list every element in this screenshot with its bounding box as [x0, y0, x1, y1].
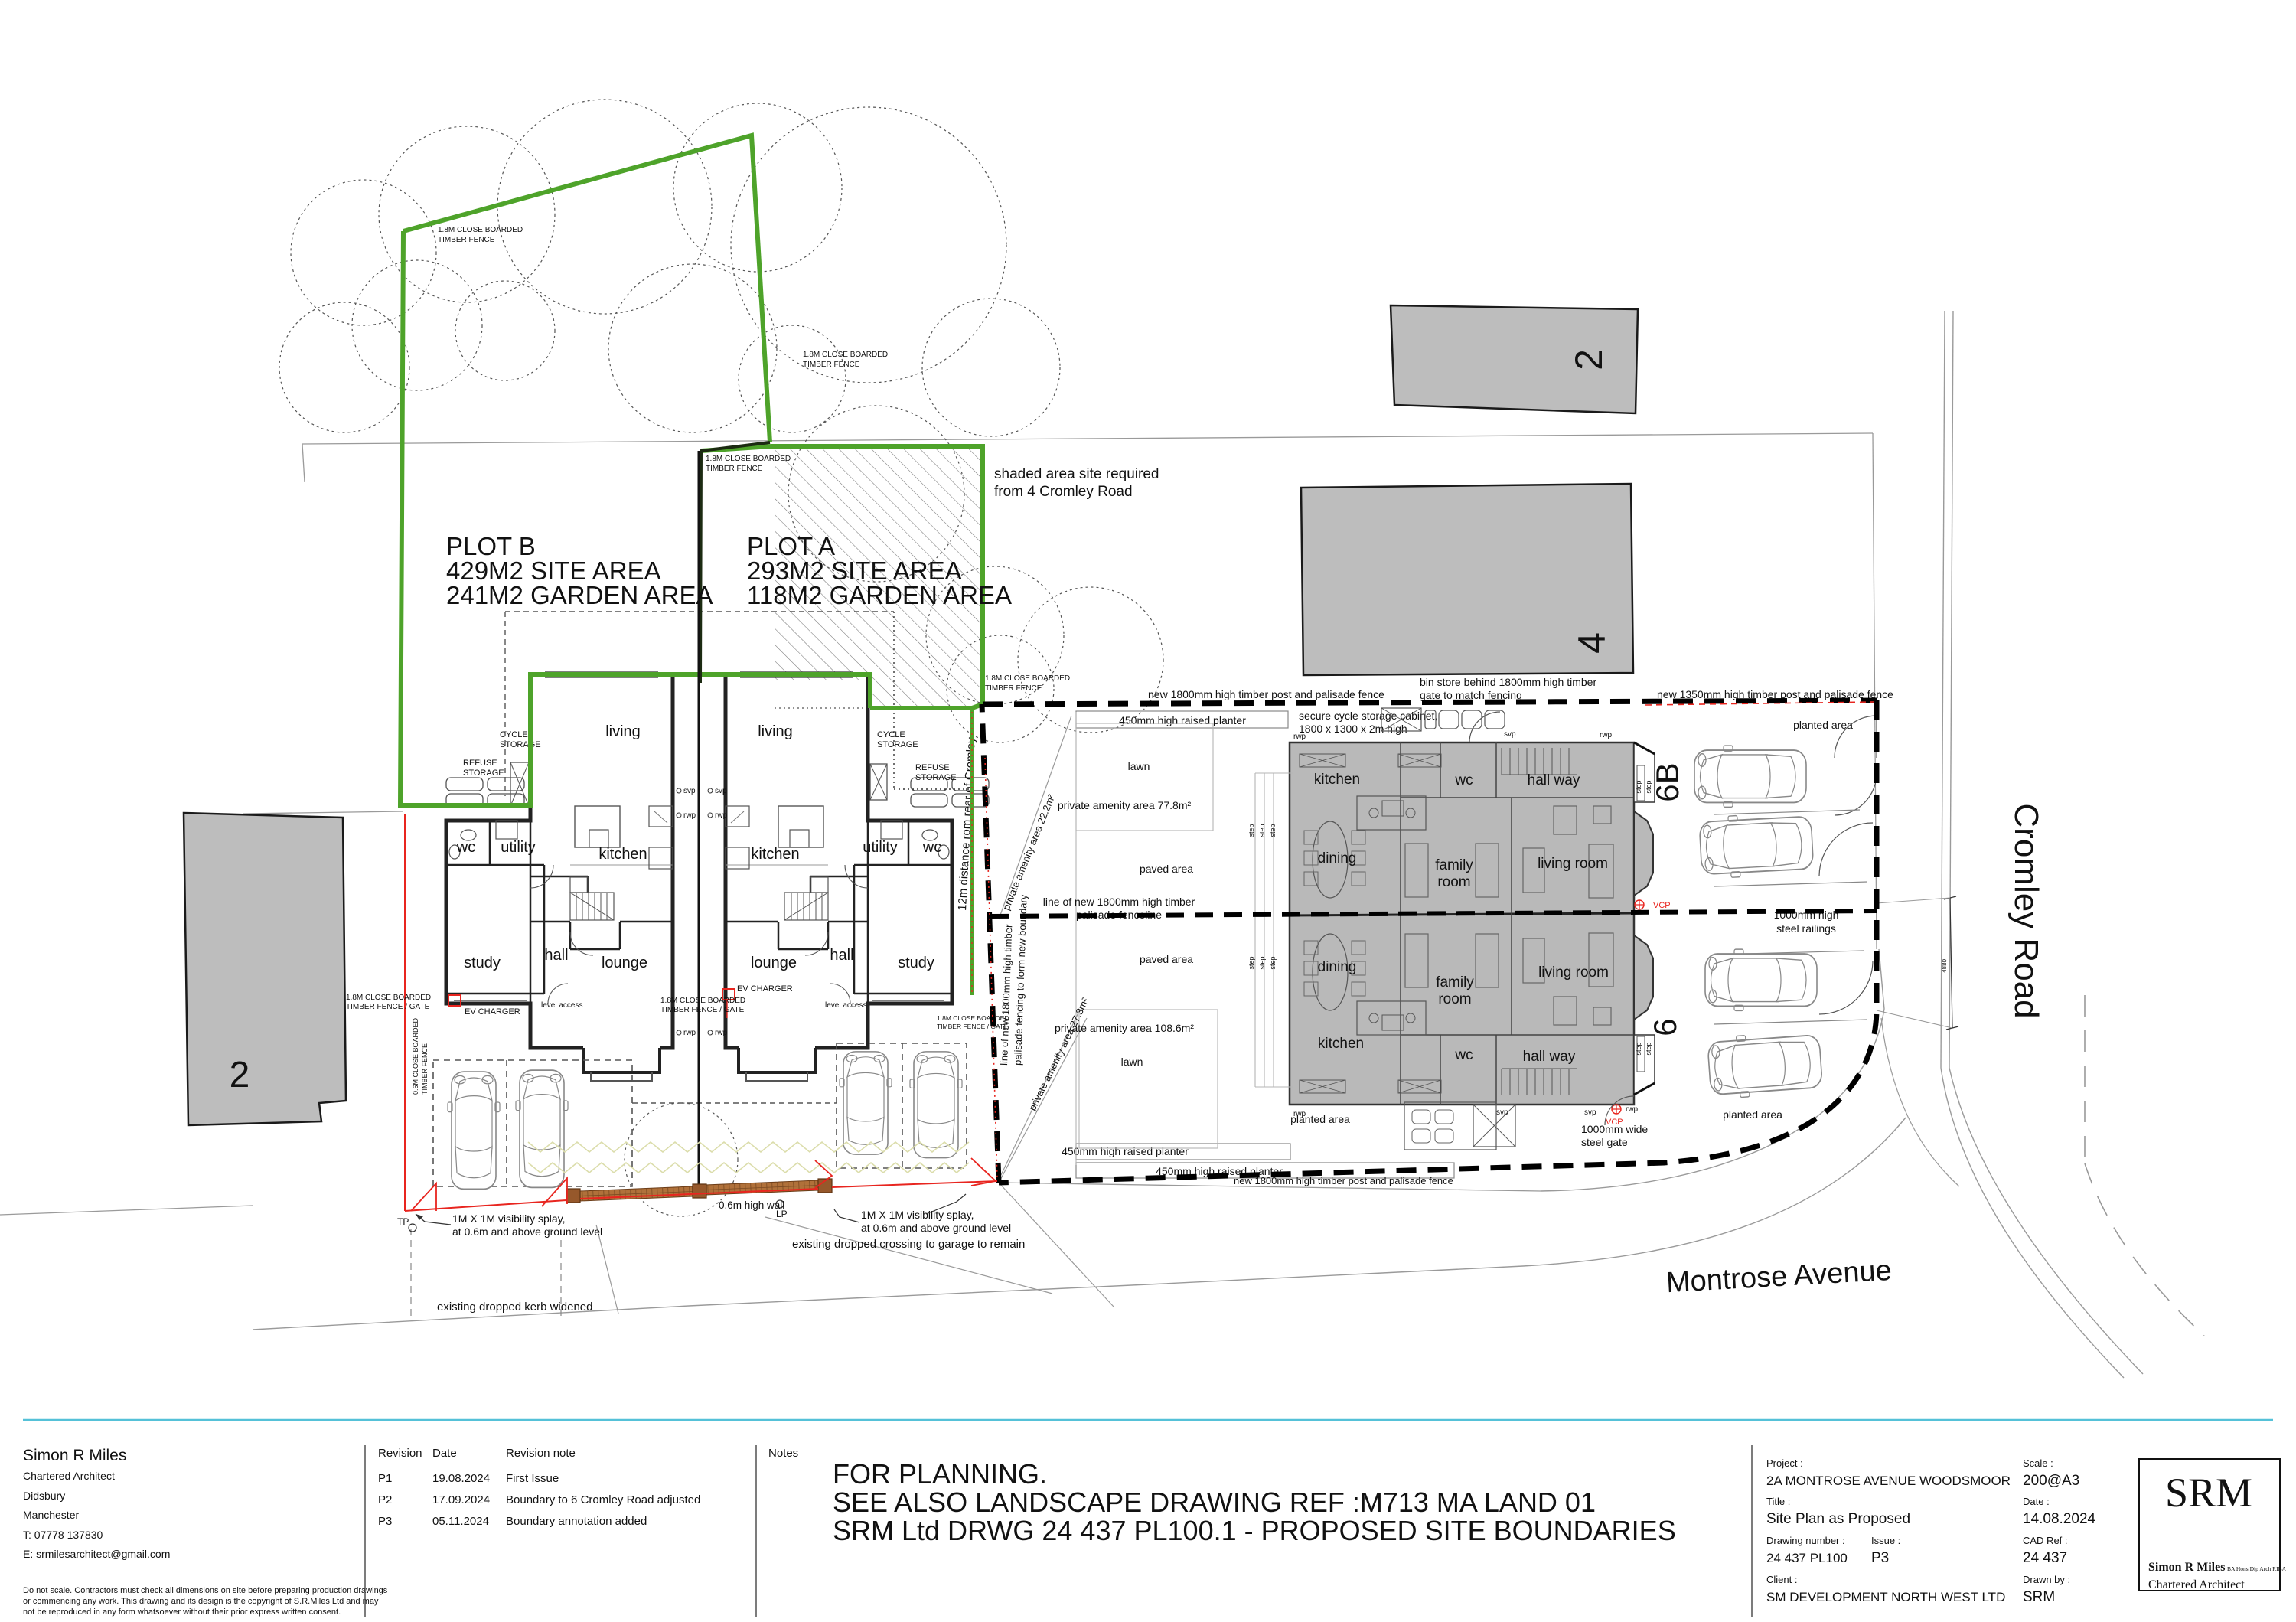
svg-text:STORAGE: STORAGE [877, 740, 918, 749]
svg-text:shaded area site required: shaded area site required [994, 466, 1159, 482]
svg-text:svp: svp [1584, 1108, 1596, 1117]
svg-text:Simon R Miles: Simon R Miles [23, 1447, 126, 1464]
svg-text:Cromley Road: Cromley Road [2007, 803, 2045, 1018]
svg-text:level access: level access [825, 1001, 866, 1010]
svg-text:step: step [1269, 824, 1277, 837]
svg-text:paved area: paved area [1140, 863, 1193, 875]
svg-text:gate to match fencing: gate to match fencing [1420, 689, 1522, 701]
svg-text:lawn: lawn [1121, 1056, 1143, 1068]
svg-text:2: 2 [230, 1055, 250, 1095]
svg-text:at 0.6m and above ground level: at 0.6m and above ground level [861, 1222, 1011, 1234]
svg-text:TIMBER FENCE / GATE: TIMBER FENCE / GATE [346, 1003, 430, 1011]
svg-text:rwp: rwp [1600, 731, 1613, 739]
svg-text:EV CHARGER: EV CHARGER [737, 984, 793, 994]
svg-text:rwp: rwp [715, 811, 728, 820]
svg-text:planted area: planted area [1793, 719, 1853, 731]
svg-text:CYCLE: CYCLE [500, 730, 528, 739]
svg-text:hall: hall [830, 947, 853, 964]
svg-text:room: room [1438, 991, 1471, 1007]
svg-text:bin store behind 1800mm high t: bin store behind 1800mm high timber [1420, 676, 1596, 688]
svg-text:not be reproduced in any form: not be reproduced in any form whatsoever… [23, 1607, 341, 1617]
svg-text:1.8M CLOSE BOARDED: 1.8M CLOSE BOARDED [803, 351, 888, 359]
svg-text:living: living [758, 723, 793, 740]
svg-text:P3: P3 [1871, 1550, 1889, 1566]
svg-text:TIMBER FENCE: TIMBER FENCE [803, 361, 860, 369]
svg-text:lounge: lounge [602, 955, 647, 971]
svg-text:dining: dining [1318, 850, 1357, 866]
svg-text:1M X 1M visibility splay,: 1M X 1M visibility splay, [452, 1212, 566, 1225]
svg-text:living room: living room [1538, 856, 1608, 872]
svg-text:rwp: rwp [683, 1029, 696, 1037]
svg-text:at 0.6m and above ground level: at 0.6m and above ground level [452, 1225, 602, 1238]
svg-text:1000mm wide: 1000mm wide [1581, 1123, 1648, 1135]
svg-text:14.08.2024: 14.08.2024 [2023, 1511, 2096, 1527]
svg-text:living room: living room [1538, 964, 1609, 981]
svg-text:room: room [1437, 874, 1470, 890]
svg-text:utility: utility [863, 839, 898, 856]
svg-text:rwp: rwp [1626, 1105, 1639, 1114]
svg-text:svp: svp [1504, 730, 1516, 739]
svg-text:Drawn by :: Drawn by : [2023, 1574, 2070, 1585]
svg-text:study: study [464, 955, 501, 971]
svg-text:05.11.2024: 05.11.2024 [432, 1515, 489, 1528]
svg-text:P2: P2 [378, 1493, 392, 1506]
svg-text:private amenity area 77.8m²: private amenity area 77.8m² [1058, 799, 1192, 811]
svg-text:Scale :: Scale : [2023, 1457, 2053, 1469]
svg-text:24 437 PL100: 24 437 PL100 [1766, 1551, 1848, 1565]
svg-text:SRM: SRM [2165, 1470, 2252, 1516]
svg-text:lawn: lawn [1128, 760, 1150, 772]
svg-text:CAD Ref :: CAD Ref : [2023, 1535, 2068, 1546]
svg-text:SRM Ltd DRWG 24 437 PL100.1 -: SRM Ltd DRWG 24 437 PL100.1 - PROPOSED S… [833, 1515, 1676, 1546]
svg-text:Title :: Title : [1766, 1496, 1790, 1507]
svg-text:existing dropped kerb widened: existing dropped kerb widened [437, 1301, 592, 1314]
svg-text:wc: wc [456, 839, 475, 856]
svg-text:step: step [1635, 780, 1642, 793]
svg-text:line of new 1800mm high timber: line of new 1800mm high timber [1043, 896, 1195, 908]
svg-text:118M2 GARDEN AREA: 118M2 GARDEN AREA [747, 581, 1012, 609]
svg-text:1800 x 1300 x 2m high: 1800 x 1300 x 2m high [1299, 723, 1407, 735]
svg-text:Site Plan as Proposed: Site Plan as Proposed [1766, 1511, 1910, 1527]
svg-text:241M2 GARDEN AREA: 241M2 GARDEN AREA [446, 581, 713, 609]
svg-text:2: 2 [1567, 349, 1610, 370]
svg-text:family: family [1435, 857, 1473, 873]
svg-text:rwp: rwp [683, 811, 696, 820]
svg-text:REFUSE: REFUSE [463, 759, 497, 768]
svg-text:kitchen: kitchen [598, 846, 647, 863]
svg-text:step: step [1258, 824, 1266, 837]
svg-text:wc: wc [922, 839, 941, 856]
svg-text:wc: wc [1454, 1047, 1473, 1063]
svg-text:450mm high raised planter: 450mm high raised planter [1119, 714, 1246, 726]
svg-text:Date :: Date : [2023, 1496, 2050, 1507]
svg-text:or commencing any work. This d: or commencing any work. This drawing and… [23, 1597, 379, 1606]
svg-text:new 1800mm high timber post an: new 1800mm high timber post and palisade… [1148, 688, 1384, 700]
svg-text:BA Hons Dip Arch RIBA: BA Hons Dip Arch RIBA [2227, 1565, 2287, 1572]
svg-text:svp: svp [683, 787, 696, 795]
svg-text:TIMBER FENCE: TIMBER FENCE [438, 236, 495, 244]
svg-text:19.08.2024: 19.08.2024 [432, 1472, 490, 1485]
svg-text:level access: level access [541, 1001, 582, 1010]
svg-text:study: study [898, 955, 934, 971]
svg-text:planted area: planted area [1723, 1108, 1782, 1121]
svg-text:TIMBER FENCE: TIMBER FENCE [706, 465, 763, 473]
svg-text:TIMBER FENCE: TIMBER FENCE [421, 1043, 429, 1095]
svg-text:svp: svp [1496, 1108, 1508, 1117]
svg-text:4: 4 [1570, 632, 1613, 654]
svg-text:STORAGE: STORAGE [915, 773, 957, 782]
svg-text:6B: 6B [1649, 762, 1685, 801]
svg-text:Revision: Revision [378, 1447, 422, 1460]
svg-text:family: family [1436, 974, 1474, 990]
svg-text:new 1800mm high timber post an: new 1800mm high timber post and palisade… [1234, 1175, 1453, 1186]
svg-text:TIMBER FENCE: TIMBER FENCE [985, 684, 1042, 693]
svg-text:T: 07778 137830: T: 07778 137830 [23, 1529, 103, 1541]
svg-text:Simon R Miles: Simon R Miles [2148, 1561, 2225, 1574]
svg-text:P1: P1 [378, 1472, 392, 1485]
svg-text:Boundary to 6 Cromley Road adj: Boundary to 6 Cromley Road adjusted [506, 1493, 700, 1506]
svg-text:First Issue: First Issue [506, 1472, 559, 1485]
svg-text:kitchen: kitchen [1314, 772, 1360, 788]
svg-text:SEE ALSO LANDSCAPE DRAWING REF: SEE ALSO LANDSCAPE DRAWING REF :M713 MA … [833, 1487, 1596, 1518]
svg-text:Revision note: Revision note [506, 1447, 576, 1460]
svg-text:existing dropped crossing to g: existing dropped crossing to garage to r… [792, 1238, 1025, 1251]
svg-text:1.8M CLOSE BOARDED: 1.8M CLOSE BOARDED [346, 994, 431, 1002]
svg-text:Didsbury: Didsbury [23, 1490, 65, 1502]
svg-text:1M X 1M visibility splay,: 1M X 1M visibility splay, [861, 1209, 974, 1221]
svg-text:STORAGE: STORAGE [463, 769, 504, 778]
svg-text:step: step [1269, 956, 1277, 969]
svg-text:CYCLE: CYCLE [877, 730, 905, 739]
svg-text:from 4 Cromley Road: from 4 Cromley Road [994, 484, 1133, 500]
svg-text:E: srmilesarchitect@gmail.com: E: srmilesarchitect@gmail.com [23, 1548, 170, 1560]
svg-text:steel gate: steel gate [1581, 1136, 1628, 1148]
svg-text:P3: P3 [378, 1515, 392, 1528]
svg-text:step: step [1645, 780, 1652, 793]
svg-text:SRM: SRM [2023, 1589, 2055, 1605]
svg-text:living: living [605, 723, 641, 740]
svg-text:6: 6 [1647, 1018, 1683, 1036]
svg-text:Notes: Notes [768, 1447, 798, 1460]
svg-text:0.6M CLOSE BOARDED: 0.6M CLOSE BOARDED [412, 1017, 419, 1095]
svg-text:step: step [1635, 1042, 1642, 1055]
svg-text:hall way: hall way [1528, 772, 1580, 788]
svg-text:0.6m high wall: 0.6m high wall [719, 1199, 784, 1211]
svg-text:TIMBER FENCE / GATE: TIMBER FENCE / GATE [660, 1006, 745, 1014]
svg-text:1.8M CLOSE BOARDED: 1.8M CLOSE BOARDED [706, 455, 791, 463]
svg-text:paved area: paved area [1140, 953, 1193, 965]
svg-text:Drawing number :: Drawing number : [1766, 1535, 1845, 1546]
svg-text:dining: dining [1318, 959, 1357, 975]
svg-text:secure cycle storage cabinet,: secure cycle storage cabinet, [1299, 710, 1437, 722]
svg-text:STORAGE: STORAGE [500, 740, 541, 749]
svg-text:Date: Date [432, 1447, 457, 1460]
svg-text:2A MONTROSE AVENUE WOODSMOOR: 2A MONTROSE AVENUE WOODSMOOR [1766, 1474, 2011, 1488]
svg-text:hall way: hall way [1523, 1049, 1576, 1065]
svg-text:step: step [1247, 956, 1255, 969]
svg-text:1.8M CLOSE BOARDED: 1.8M CLOSE BOARDED [985, 674, 1070, 683]
svg-text:Chartered Architect: Chartered Architect [2148, 1578, 2245, 1591]
svg-text:step: step [1258, 956, 1266, 969]
svg-text:Chartered Architect: Chartered Architect [23, 1470, 115, 1482]
svg-text:step: step [1645, 1042, 1652, 1055]
svg-text:200@A3: 200@A3 [2023, 1473, 2079, 1489]
svg-text:Do not scale. Contractors must: Do not scale. Contractors must check all… [23, 1586, 388, 1595]
svg-text:SM DEVELOPMENT NORTH WEST LTD: SM DEVELOPMENT NORTH WEST LTD [1766, 1590, 2005, 1604]
svg-text:TIMBER FENCE / GATE: TIMBER FENCE / GATE [937, 1023, 1008, 1030]
svg-text:utility: utility [501, 839, 536, 856]
svg-text:1.8M CLOSE BOARDED: 1.8M CLOSE BOARDED [660, 997, 745, 1005]
svg-text:Project :: Project : [1766, 1457, 1803, 1469]
svg-text:17.09.2024: 17.09.2024 [432, 1493, 490, 1506]
svg-text:wc: wc [1454, 772, 1473, 788]
svg-text:planted area: planted area [1290, 1113, 1350, 1125]
svg-text:lounge: lounge [751, 955, 797, 971]
svg-text:Issue :: Issue : [1871, 1535, 1900, 1546]
svg-text:EV CHARGER: EV CHARGER [465, 1007, 520, 1017]
svg-text:REFUSE: REFUSE [915, 763, 950, 772]
svg-text:hall: hall [544, 947, 568, 964]
svg-text:Manchester: Manchester [23, 1509, 79, 1521]
svg-text:Client :: Client : [1766, 1574, 1797, 1585]
svg-text:step: step [1247, 824, 1255, 837]
svg-text:4880: 4880 [1941, 958, 1948, 973]
svg-text:rwp: rwp [715, 1029, 728, 1037]
svg-text:24 437: 24 437 [2023, 1550, 2067, 1566]
svg-text:steel railings: steel railings [1776, 922, 1836, 935]
svg-text:kitchen: kitchen [1318, 1036, 1364, 1052]
svg-text:FOR PLANNING.: FOR PLANNING. [833, 1458, 1047, 1490]
svg-text:1.8M CLOSE BOARDED: 1.8M CLOSE BOARDED [438, 226, 523, 234]
svg-text:1.8M CLOSE BOARDED: 1.8M CLOSE BOARDED [937, 1014, 1009, 1022]
svg-text:svp: svp [715, 787, 727, 795]
svg-text:VCP: VCP [1653, 901, 1671, 910]
svg-text:kitchen: kitchen [751, 846, 799, 863]
svg-text:TP: TP [397, 1216, 409, 1227]
svg-text:Boundary annotation added: Boundary annotation added [506, 1515, 647, 1528]
svg-text:450mm high raised planter: 450mm high raised planter [1062, 1145, 1189, 1157]
